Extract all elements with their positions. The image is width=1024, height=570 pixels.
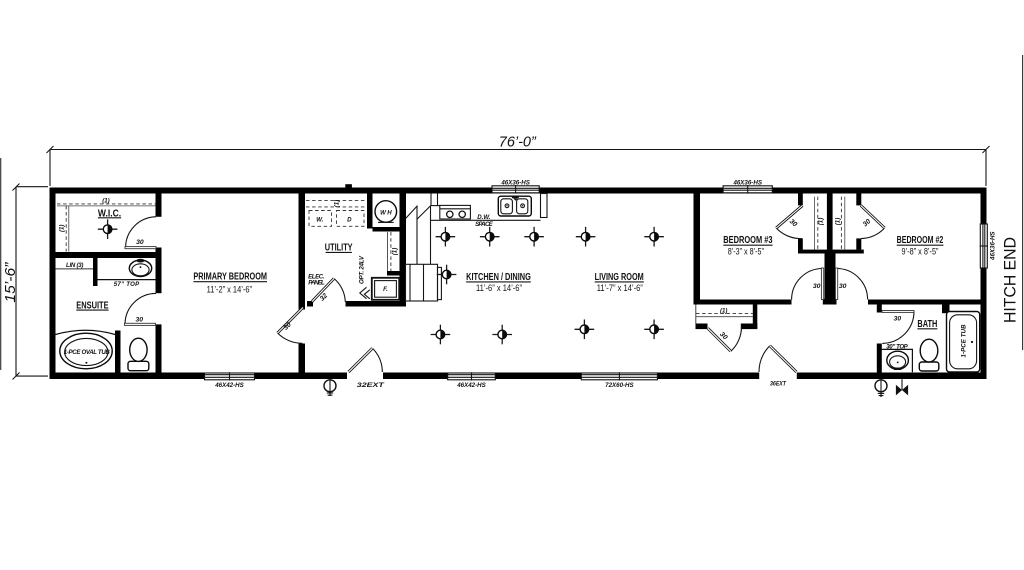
svg-text:KITCHEN / DINING: KITCHEN / DINING xyxy=(466,272,531,283)
svg-text:PANEL: PANEL xyxy=(308,279,325,286)
svg-text:76’-0”: 76’-0” xyxy=(499,134,537,150)
svg-text:1-PCE OVAL TUB: 1-PCE OVAL TUB xyxy=(64,349,111,356)
svg-text:8’-3” x 8’-5”: 8’-3” x 8’-5” xyxy=(728,247,764,257)
svg-text:30” TOP: 30” TOP xyxy=(886,343,908,350)
svg-text:9’-8” x 8’-5”: 9’-8” x 8’-5” xyxy=(902,247,939,257)
svg-text:46X36-HS: 46X36-HS xyxy=(500,180,530,187)
svg-text:PRIMARY BEDROOM: PRIMARY BEDROOM xyxy=(193,272,267,283)
svg-text:30: 30 xyxy=(813,283,821,290)
svg-text:30: 30 xyxy=(136,239,144,246)
svg-text:W.: W. xyxy=(316,217,323,224)
svg-text:30: 30 xyxy=(839,283,847,290)
svg-text:72X60-HS: 72X60-HS xyxy=(605,382,634,389)
svg-text:32EXT: 32EXT xyxy=(357,382,385,389)
svg-text:46X36-HS: 46X36-HS xyxy=(990,231,997,261)
svg-text:(1): (1) xyxy=(59,225,66,232)
svg-text:46X42-HS: 46X42-HS xyxy=(456,382,486,389)
svg-text:(1): (1) xyxy=(720,307,727,314)
svg-text:OPT. 24LV: OPT. 24LV xyxy=(359,255,366,284)
svg-text:(1): (1) xyxy=(334,200,341,207)
svg-text:30: 30 xyxy=(894,316,902,323)
svg-text:(1): (1) xyxy=(392,248,399,255)
svg-text:UTILITY: UTILITY xyxy=(325,242,353,253)
svg-text:46X36-HS: 46X36-HS xyxy=(733,180,763,187)
svg-text:11’-6” x 14’-6”: 11’-6” x 14’-6” xyxy=(476,283,522,293)
svg-text:11’-2” x 14’-6”: 11’-2” x 14’-6” xyxy=(207,285,252,295)
svg-text:BEDROOM #2: BEDROOM #2 xyxy=(897,235,944,246)
svg-text:HITCH END: HITCH END xyxy=(1002,237,1020,323)
svg-text:LIVING ROOM: LIVING ROOM xyxy=(595,272,644,283)
svg-text:(1): (1) xyxy=(817,218,824,225)
svg-text:15’-6”: 15’-6” xyxy=(3,261,19,302)
svg-text:BEDROOM #3: BEDROOM #3 xyxy=(723,235,773,246)
svg-text:D.W.: D.W. xyxy=(477,214,490,221)
svg-text:11’-7” x 14’-6”: 11’-7” x 14’-6” xyxy=(597,283,643,293)
svg-text:57” TOP: 57” TOP xyxy=(114,281,140,288)
svg-text:SPACE: SPACE xyxy=(475,221,493,228)
svg-text:F.: F. xyxy=(383,286,388,293)
svg-text:36EXT: 36EXT xyxy=(770,381,787,388)
svg-text:(1): (1) xyxy=(102,197,109,204)
svg-text:LIN (3): LIN (3) xyxy=(66,262,83,269)
svg-text:30: 30 xyxy=(136,317,144,324)
svg-text:D: D xyxy=(347,217,352,224)
svg-text:(1): (1) xyxy=(834,218,841,225)
svg-text:1-PCE TUB: 1-PCE TUB xyxy=(961,324,968,358)
svg-text:46X42-HS: 46X42-HS xyxy=(214,382,244,389)
